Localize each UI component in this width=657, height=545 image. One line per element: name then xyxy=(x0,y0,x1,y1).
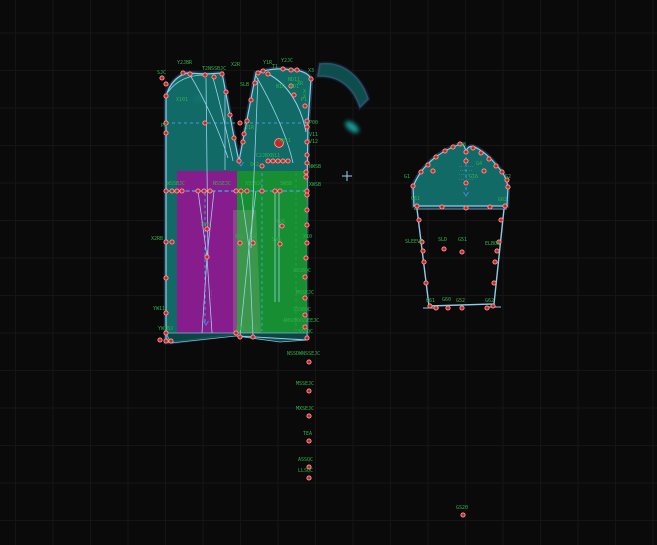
point-label[interactable]: G62 xyxy=(485,298,494,304)
pattern-point[interactable] xyxy=(305,241,309,245)
point-label[interactable]: SW6 xyxy=(272,237,281,243)
pattern-point[interactable] xyxy=(266,159,270,163)
pattern-point[interactable] xyxy=(309,77,313,81)
point-label[interactable]: G8 xyxy=(460,142,466,148)
pattern-point[interactable] xyxy=(424,281,428,285)
pattern-point[interactable] xyxy=(239,189,243,193)
pattern-point[interactable] xyxy=(305,189,309,193)
point-label[interactable]: SWSB xyxy=(280,181,292,187)
point-label[interactable]: ASSQC xyxy=(298,457,313,463)
pattern-point[interactable] xyxy=(305,336,309,340)
pattern-point[interactable] xyxy=(238,335,242,339)
point-label[interactable]: G61 xyxy=(411,196,420,202)
pattern-point[interactable] xyxy=(281,67,285,71)
point-label[interactable]: Y2JC xyxy=(281,58,293,64)
point-label[interactable]: XSSBJC xyxy=(245,181,263,187)
point-label[interactable]: ELBOW xyxy=(485,241,501,247)
pattern-point[interactable] xyxy=(460,306,464,310)
pattern-point[interactable] xyxy=(431,169,435,173)
point-label[interactable]: G52 xyxy=(456,298,465,304)
point-label[interactable]: X10 xyxy=(303,234,312,240)
point-label[interactable]: X3 xyxy=(308,68,314,74)
pattern-point[interactable] xyxy=(164,131,168,135)
pattern-point[interactable] xyxy=(278,189,282,193)
pattern-point[interactable] xyxy=(256,71,260,75)
pattern-point[interactable] xyxy=(492,281,496,285)
pattern-point[interactable] xyxy=(180,189,184,193)
point-label[interactable]: YW1BJ xyxy=(158,326,173,332)
pattern-point[interactable] xyxy=(303,104,307,108)
pattern-point[interactable] xyxy=(260,164,264,168)
pattern-point[interactable] xyxy=(234,189,238,193)
pattern-point[interactable] xyxy=(482,169,486,173)
pattern-point[interactable] xyxy=(485,306,489,310)
grid-lines xyxy=(0,0,657,545)
pattern-point[interactable] xyxy=(500,170,504,174)
pattern-point[interactable] xyxy=(212,75,216,79)
pattern-point[interactable] xyxy=(158,338,162,342)
pattern-point[interactable] xyxy=(305,153,309,157)
point-label[interactable]: SJC xyxy=(157,70,166,76)
pattern-point[interactable] xyxy=(461,513,465,517)
point-label[interactable]: ANSQWXSSEEJC xyxy=(283,318,319,324)
point-label[interactable]: G60 xyxy=(442,297,451,303)
pattern-point[interactable] xyxy=(224,90,228,94)
point-label[interactable]: XS1 xyxy=(235,234,244,240)
selection-glow xyxy=(343,119,361,135)
pattern-point[interactable] xyxy=(281,159,285,163)
point-label[interactable]: V12 xyxy=(309,139,318,145)
point-label[interactable]: X2RB xyxy=(151,236,163,242)
pattern-point[interactable] xyxy=(307,360,311,364)
pattern-point[interactable] xyxy=(164,82,168,86)
point-label[interactable]: LLSQC xyxy=(298,468,313,474)
pattern-point[interactable] xyxy=(271,159,275,163)
pattern-point[interactable] xyxy=(506,185,510,189)
pattern-point[interactable] xyxy=(188,72,192,76)
point-label[interactable]: NWSB xyxy=(309,164,321,170)
point-label[interactable]: G16 xyxy=(469,174,478,180)
point-label[interactable]: V11 xyxy=(309,132,318,138)
pattern-point[interactable] xyxy=(292,93,296,97)
pattern-point[interactable] xyxy=(307,439,311,443)
pattern-point[interactable] xyxy=(170,240,174,244)
pattern-point[interactable] xyxy=(205,255,209,259)
pattern-point[interactable] xyxy=(305,208,309,212)
pattern-point[interactable] xyxy=(307,414,311,418)
point-label[interactable]: P6 xyxy=(161,123,167,129)
pattern-point[interactable] xyxy=(426,163,430,167)
pattern-point[interactable] xyxy=(415,204,419,208)
pattern-point[interactable] xyxy=(245,189,249,193)
pattern-point[interactable] xyxy=(464,206,468,210)
pattern-point[interactable] xyxy=(304,170,308,174)
point-label[interactable]: XB11 xyxy=(279,138,291,144)
pattern-point[interactable] xyxy=(295,68,299,72)
pattern-point[interactable] xyxy=(303,275,307,279)
point-label[interactable]: G51 xyxy=(458,237,467,243)
point-label[interactable]: SSSBQC xyxy=(293,307,311,313)
pattern-point[interactable] xyxy=(419,170,423,174)
pattern-point[interactable] xyxy=(175,189,179,193)
pattern-point[interactable] xyxy=(202,189,206,193)
pattern-point[interactable] xyxy=(491,304,495,308)
pattern-point[interactable] xyxy=(487,157,491,161)
pattern-point[interactable] xyxy=(286,159,290,163)
point-label[interactable]: V1R xyxy=(245,125,255,131)
pattern-point[interactable] xyxy=(303,313,307,317)
point-label[interactable]: T2NSSBJC xyxy=(202,66,226,72)
pattern-point[interactable] xyxy=(495,249,499,253)
point-label[interactable]: X11 xyxy=(236,326,245,332)
pattern-point[interactable] xyxy=(422,260,426,264)
pattern-point[interactable] xyxy=(220,72,224,76)
point-label[interactable]: C2JBXB11 xyxy=(256,153,280,159)
point-label[interactable]: MXSEJC xyxy=(296,406,314,412)
point-label[interactable]: MSSEJC xyxy=(296,381,314,387)
point-label[interactable]: T1 xyxy=(272,64,278,70)
pattern-point[interactable] xyxy=(499,218,503,222)
pattern-point[interactable] xyxy=(238,121,242,125)
point-label[interactable]: X2R xyxy=(231,62,241,68)
pattern-point[interactable] xyxy=(417,218,421,222)
pattern-point[interactable] xyxy=(493,260,497,264)
point-label[interactable]: WSSBJC xyxy=(167,181,185,187)
pattern-point[interactable] xyxy=(434,155,438,159)
point-label[interactable]: TEA xyxy=(303,431,312,437)
point-label[interactable]: N1R xyxy=(276,84,286,90)
point-label[interactable]: G2 xyxy=(505,174,511,180)
point-label[interactable]: SC2 xyxy=(250,162,259,168)
point-label[interactable]: GS20 xyxy=(456,505,468,511)
pattern-point[interactable] xyxy=(164,240,168,244)
pattern-point[interactable] xyxy=(460,250,464,254)
pattern-point[interactable] xyxy=(196,189,200,193)
pattern-point[interactable] xyxy=(303,296,307,300)
pattern-point[interactable] xyxy=(479,151,483,155)
pattern-point[interactable] xyxy=(160,76,164,80)
point-label[interactable]: Y2JBR xyxy=(177,60,193,66)
point-label[interactable]: X12 xyxy=(249,326,258,332)
pattern-point[interactable] xyxy=(164,94,168,98)
pattern-point[interactable] xyxy=(241,140,245,144)
pattern-point[interactable] xyxy=(266,72,270,76)
point-label[interactable]: WV6 xyxy=(201,222,210,228)
pattern-point[interactable] xyxy=(434,306,438,310)
point-label[interactable]: MSSEJC xyxy=(296,290,314,296)
pattern-point[interactable] xyxy=(251,241,255,245)
pattern-point[interactable] xyxy=(440,205,444,209)
pattern-point[interactable] xyxy=(446,306,450,310)
pattern-point[interactable] xyxy=(164,276,168,280)
point-label[interactable]: XR xyxy=(297,81,304,87)
pattern-point[interactable] xyxy=(488,205,492,209)
pattern-point[interactable] xyxy=(170,189,174,193)
pattern-point[interactable] xyxy=(307,476,311,480)
point-label[interactable]: YW11 xyxy=(153,306,165,312)
pattern-canvas[interactable]: ·· ········· ············· ·············… xyxy=(0,0,657,545)
pattern-point[interactable] xyxy=(203,121,207,125)
point-label[interactable]: G4 xyxy=(476,161,482,167)
piece-annotation-text: ······ xyxy=(209,289,213,300)
drawing-surface[interactable]: ·· ········· ············· ·············… xyxy=(0,0,657,545)
pattern-point[interactable] xyxy=(208,189,212,193)
pattern-point[interactable] xyxy=(289,68,293,72)
pattern-point[interactable] xyxy=(307,389,311,393)
pattern-point[interactable] xyxy=(181,71,185,75)
point-label[interactable]: P1 xyxy=(301,97,307,103)
point-label[interactable]: P00 xyxy=(309,120,318,126)
pattern-point[interactable] xyxy=(251,335,255,339)
pattern-point[interactable] xyxy=(238,241,242,245)
pattern-point[interactable] xyxy=(442,247,446,251)
pattern-point[interactable] xyxy=(494,164,498,168)
point-label[interactable]: SLB xyxy=(240,82,249,88)
pattern-point[interactable] xyxy=(503,204,507,208)
point-label[interactable]: XS2 xyxy=(248,234,257,240)
pattern-point[interactable] xyxy=(261,69,265,73)
point-label[interactable]: SLD xyxy=(438,237,447,243)
pattern-point[interactable] xyxy=(232,136,236,140)
pattern-point[interactable] xyxy=(451,145,455,149)
cursor-crosshair-icon xyxy=(342,171,352,181)
point-label[interactable]: SSSQC xyxy=(298,329,313,335)
pattern-point[interactable] xyxy=(304,256,308,260)
pattern-point[interactable] xyxy=(260,189,264,193)
point-label[interactable]: XWSB xyxy=(309,182,321,188)
pattern-point[interactable] xyxy=(245,119,249,123)
pattern-point[interactable] xyxy=(304,175,308,179)
point-label[interactable]: G62 xyxy=(498,197,507,203)
point-label[interactable]: X101 xyxy=(176,97,188,103)
point-label[interactable]: YV6 xyxy=(276,219,285,225)
point-label[interactable]: NSSEJC xyxy=(213,181,231,187)
pattern-point[interactable] xyxy=(164,339,168,343)
pattern-point[interactable] xyxy=(164,189,168,193)
pattern-point[interactable] xyxy=(471,146,475,150)
pattern-point[interactable] xyxy=(464,181,468,185)
pattern-point[interactable] xyxy=(428,304,432,308)
pattern-point[interactable] xyxy=(464,159,468,163)
pattern-point[interactable] xyxy=(203,73,207,77)
pattern-point[interactable] xyxy=(253,81,257,85)
pattern-point[interactable] xyxy=(237,159,241,163)
point-label[interactable]: G1 xyxy=(404,174,410,180)
pattern-point[interactable] xyxy=(249,98,253,102)
pattern-point[interactable] xyxy=(421,249,425,253)
point-label[interactable]: XSSBQC xyxy=(293,268,311,274)
pattern-point[interactable] xyxy=(242,132,246,136)
piece-annotation-text: ········· xyxy=(256,270,260,286)
pattern-point[interactable] xyxy=(443,149,447,153)
pattern-point[interactable] xyxy=(276,159,280,163)
point-label[interactable]: NSSDWNSSEJC xyxy=(287,351,320,357)
pattern-point[interactable] xyxy=(169,339,173,343)
pattern-point[interactable] xyxy=(464,150,468,154)
point-label[interactable]: G61 xyxy=(426,298,435,304)
pattern-point[interactable] xyxy=(411,184,415,188)
pattern-point[interactable] xyxy=(228,113,232,117)
point-label[interactable]: SLEEVE xyxy=(405,239,423,245)
pattern-point[interactable] xyxy=(305,223,309,227)
pattern-point[interactable] xyxy=(273,189,277,193)
